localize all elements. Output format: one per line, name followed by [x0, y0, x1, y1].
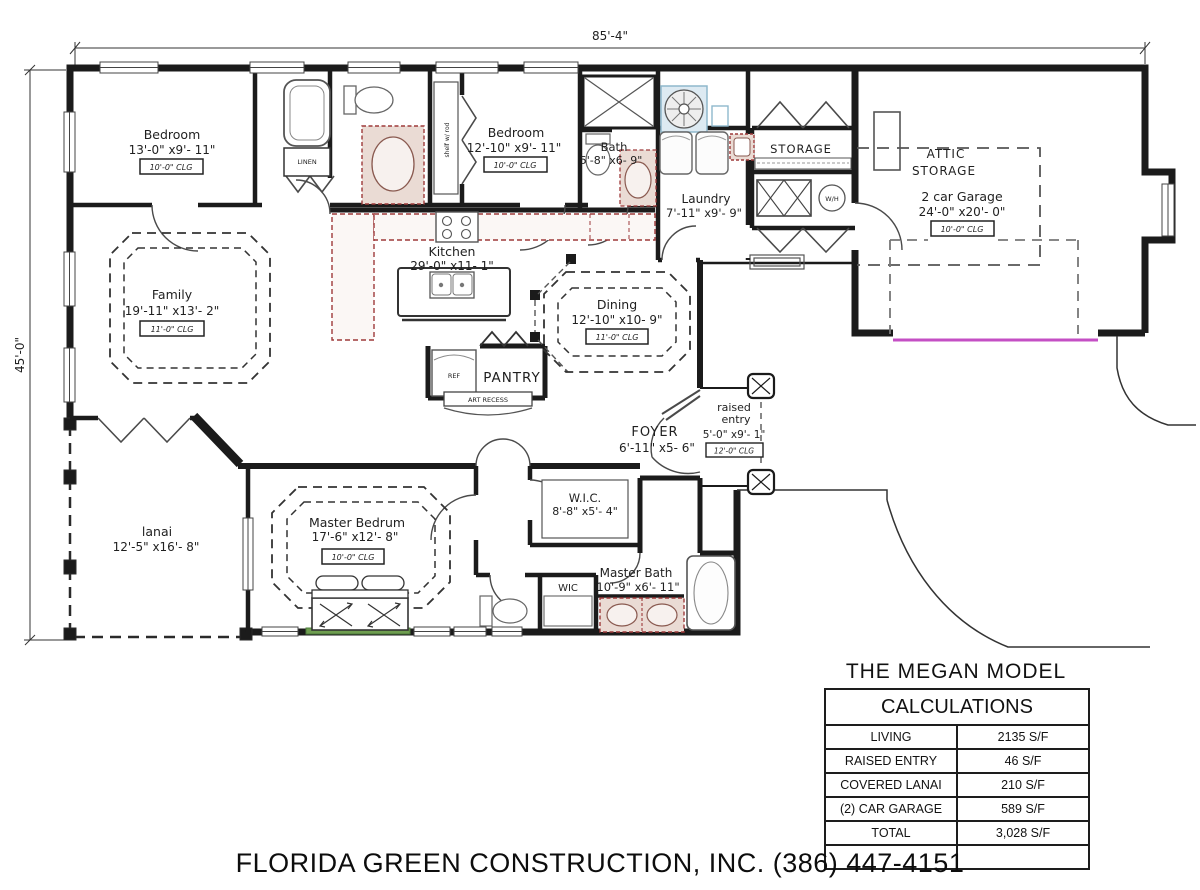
- bedroom2-clg: 10'-0" CLG: [494, 161, 537, 170]
- left-wall-windows: [64, 112, 75, 402]
- floor-plan-sheet: 85'-4" 45'-0": [0, 0, 1200, 890]
- calculations-table: CALCULATIONS LIVING 2135 S/F RAISED ENTR…: [824, 688, 1090, 870]
- master-size: 17'-6" x12'- 8": [312, 530, 399, 544]
- table-row: TOTAL 3,028 S/F: [825, 821, 1089, 845]
- water-heater-label: W/H: [825, 195, 839, 203]
- laundry-fixtures: [660, 132, 754, 174]
- dining-name: Dining: [597, 297, 637, 312]
- vanity2-sink: [625, 162, 651, 198]
- kitchen-size: 29'-0" x11- 1": [410, 259, 494, 273]
- toilet3-bowl: [493, 599, 527, 623]
- bedroom2-size: 12'-10" x9'- 11": [467, 141, 561, 155]
- laundry-size: 7'-11" x9'- 9": [666, 206, 742, 220]
- bedroom2-name: Bedroom: [488, 125, 545, 140]
- kitchen-name: Kitchen: [429, 244, 476, 259]
- walkway-driveway-lines: [737, 336, 1196, 647]
- calc-label: RAISED ENTRY: [825, 749, 957, 773]
- table-row: (2) CAR GARAGE 589 S/F: [825, 797, 1089, 821]
- bedroom1-clg: 10'-0" CLG: [150, 163, 193, 172]
- hvac-closet: [661, 86, 728, 132]
- garage-bump-window: [1162, 184, 1174, 236]
- attic-line1: ATTIC: [927, 147, 966, 161]
- wic-name: W.I.C.: [569, 491, 601, 505]
- toilet-tank: [344, 86, 356, 114]
- bath-size: 5'-8" x6- 9": [580, 154, 643, 167]
- family-clg: 11'-0" CLG: [151, 325, 194, 334]
- bathtub: [284, 80, 330, 146]
- toilet3-tank: [480, 596, 492, 626]
- foyer-name: FOYER: [631, 425, 678, 440]
- dining-clg: 11'-0" CLG: [596, 333, 639, 342]
- calc-label: TOTAL: [825, 821, 957, 845]
- bedroom1-name: Bedroom: [144, 127, 201, 142]
- entry-line2: entry: [721, 413, 751, 426]
- master-clg: 10'-0" CLG: [332, 553, 375, 562]
- calc-value: 2135 S/F: [957, 725, 1089, 749]
- storage-label: STORAGE: [770, 142, 832, 156]
- calc-value: 3,028 S/F: [957, 821, 1089, 845]
- lanai-size: 12'-5" x16'- 8": [113, 540, 200, 554]
- vanity-sink: [372, 137, 414, 191]
- entry-clg: 12'-0" CLG: [714, 447, 754, 456]
- model-title: THE MEGAN MODEL: [822, 660, 1090, 684]
- calc-value: 46 S/F: [957, 749, 1089, 773]
- lanai-name: lanai: [142, 524, 172, 539]
- calc-label: COVERED LANAI: [825, 773, 957, 797]
- pantry-label: PANTRY: [483, 370, 541, 386]
- cooktop: [436, 212, 478, 242]
- linen-label: LINEN: [297, 158, 317, 166]
- overall-width-dim: 85'-4": [592, 29, 628, 43]
- ref-label: REF: [448, 372, 461, 380]
- entry-size: 5'-0" x9'- 1": [703, 429, 766, 441]
- master-wall-window: [243, 518, 253, 590]
- table-row: RAISED ENTRY 46 S/F: [825, 749, 1089, 773]
- garage-size: 24'-0" x20'- 0": [919, 205, 1006, 219]
- electrical-panel: [757, 180, 811, 216]
- calc-value: 210 S/F: [957, 773, 1089, 797]
- laundry-name: Laundry: [682, 192, 731, 206]
- wic2-shelf: [544, 596, 592, 626]
- art-recess-label: ART RECESS: [468, 396, 508, 404]
- attic-ladder: [874, 112, 900, 170]
- calc-label: LIVING: [825, 725, 957, 749]
- dining-size: 12'-10" x10- 9": [571, 313, 662, 327]
- garage-name: 2 car Garage: [921, 189, 1003, 204]
- toilet-bowl: [355, 87, 393, 113]
- kitchen-island: [398, 268, 510, 320]
- wic2-label: WIC: [558, 583, 578, 594]
- calc-value: 589 S/F: [957, 797, 1089, 821]
- master-name: Master Bedrum: [309, 515, 405, 530]
- bath-name: Bath: [601, 140, 628, 154]
- calc-label: (2) CAR GARAGE: [825, 797, 957, 821]
- master-bed: [312, 576, 408, 630]
- table-row: COVERED LANAI 210 S/F: [825, 773, 1089, 797]
- overall-height-dim: 45'-0": [13, 337, 27, 373]
- calc-header: CALCULATIONS: [825, 689, 1089, 725]
- shelf-rod-label: shelf w/ rod: [444, 122, 451, 157]
- bedroom1-size: 13'-0" x9'- 11": [129, 143, 216, 157]
- masterbath-size: 10'-9" x6'- 11": [596, 580, 679, 594]
- attic-line2: STORAGE: [912, 164, 976, 178]
- family-name: Family: [152, 287, 193, 302]
- company-footer: FLORIDA GREEN CONSTRUCTION, INC. (386) 4…: [50, 848, 1150, 879]
- garage-clg: 10'-0" CLG: [941, 225, 984, 234]
- hall-bath-fixtures: [284, 80, 424, 204]
- kitchen-sink: [430, 272, 474, 298]
- wic-size: 8'-8" x5'- 4": [552, 505, 618, 518]
- foyer-size: 6'-11" x5- 6": [619, 441, 695, 455]
- masterbath-name: Master Bath: [600, 566, 673, 580]
- family-size: 19'-11" x13'- 2": [125, 304, 219, 318]
- table-row: LIVING 2135 S/F: [825, 725, 1089, 749]
